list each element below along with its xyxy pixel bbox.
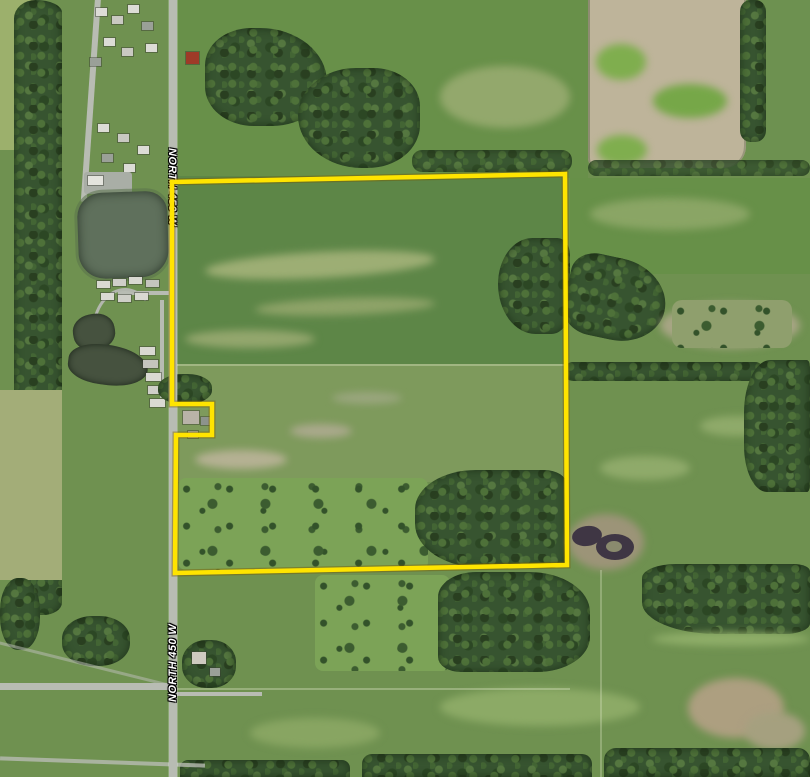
road-label-north-450-w-lower: NORTH 450 W xyxy=(167,624,180,702)
parcel-outline-layer xyxy=(0,0,810,777)
parcel-boundary[interactable] xyxy=(172,174,567,573)
parcel-boundary-halo xyxy=(172,174,567,573)
map-canvas[interactable]: NORTH 450 W NORTH 450 W xyxy=(0,0,810,777)
